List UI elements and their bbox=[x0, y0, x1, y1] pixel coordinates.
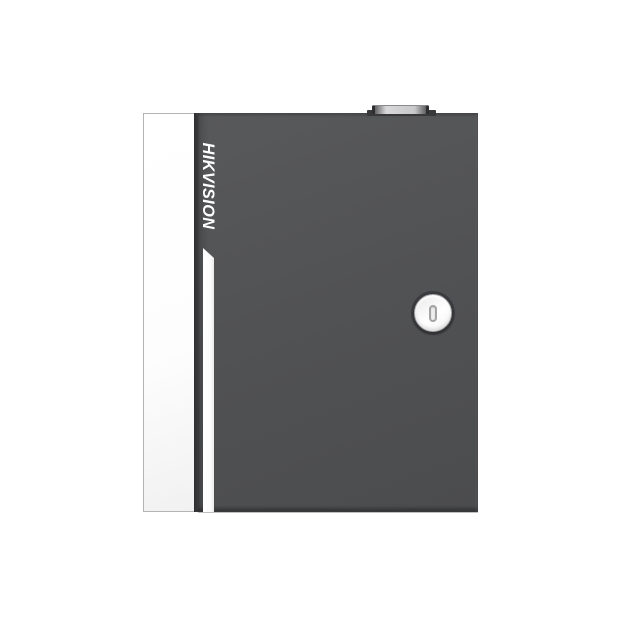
keyhole-icon bbox=[429, 305, 437, 322]
top-knob-cap bbox=[372, 105, 429, 114]
cam-lock bbox=[414, 294, 452, 332]
door-side-panel bbox=[143, 113, 196, 512]
product-photo: HIKVISION bbox=[0, 0, 620, 620]
door-accent-stripe bbox=[203, 248, 214, 512]
hikvision-logo: HIKVISION bbox=[198, 143, 218, 230]
